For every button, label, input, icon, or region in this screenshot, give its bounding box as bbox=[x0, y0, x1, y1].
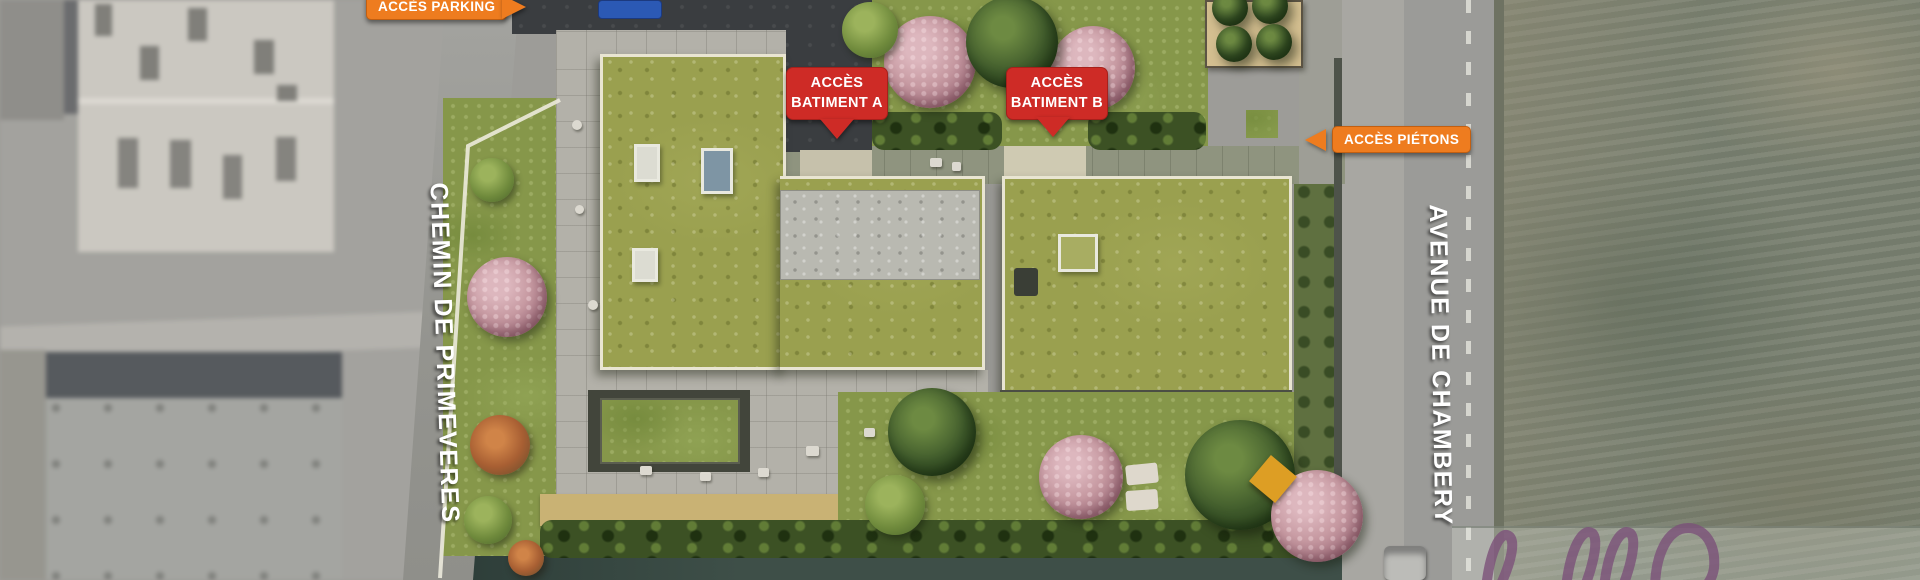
access-building-b-line2: BATIMENT B bbox=[1007, 93, 1107, 113]
arrow-down-icon bbox=[1036, 117, 1070, 137]
access-pedestrians-text: ACCÈS PIÉTONS bbox=[1344, 132, 1459, 147]
access-building-b-line1: ACCÈS bbox=[1007, 73, 1107, 93]
signature-watermark bbox=[1486, 528, 1714, 580]
street-name-avenue-de-chambery: AVENUE DE CHAMBERY bbox=[1423, 204, 1458, 526]
access-building-a-label: ACCÈS BATIMENT A bbox=[786, 67, 888, 120]
access-parking-text: ACCÈS PARKING bbox=[378, 0, 495, 14]
access-building-b-label: ACCÈS BATIMENT B bbox=[1006, 67, 1108, 120]
overlay-graphics bbox=[0, 0, 1920, 580]
access-building-a-line1: ACCÈS bbox=[787, 73, 887, 93]
arrow-left-icon bbox=[1305, 129, 1326, 151]
access-pedestrians-label: ACCÈS PIÉTONS bbox=[1332, 126, 1471, 153]
access-parking-label: ACCÈS PARKING bbox=[366, 0, 507, 20]
arrow-right-icon bbox=[502, 0, 526, 19]
residence-site-plan: ACCÈS PARKING ACCÈS BATIMENT A ACCÈS BAT… bbox=[0, 0, 1920, 580]
arrow-down-icon bbox=[820, 119, 854, 139]
access-building-a-line2: BATIMENT A bbox=[787, 93, 887, 113]
